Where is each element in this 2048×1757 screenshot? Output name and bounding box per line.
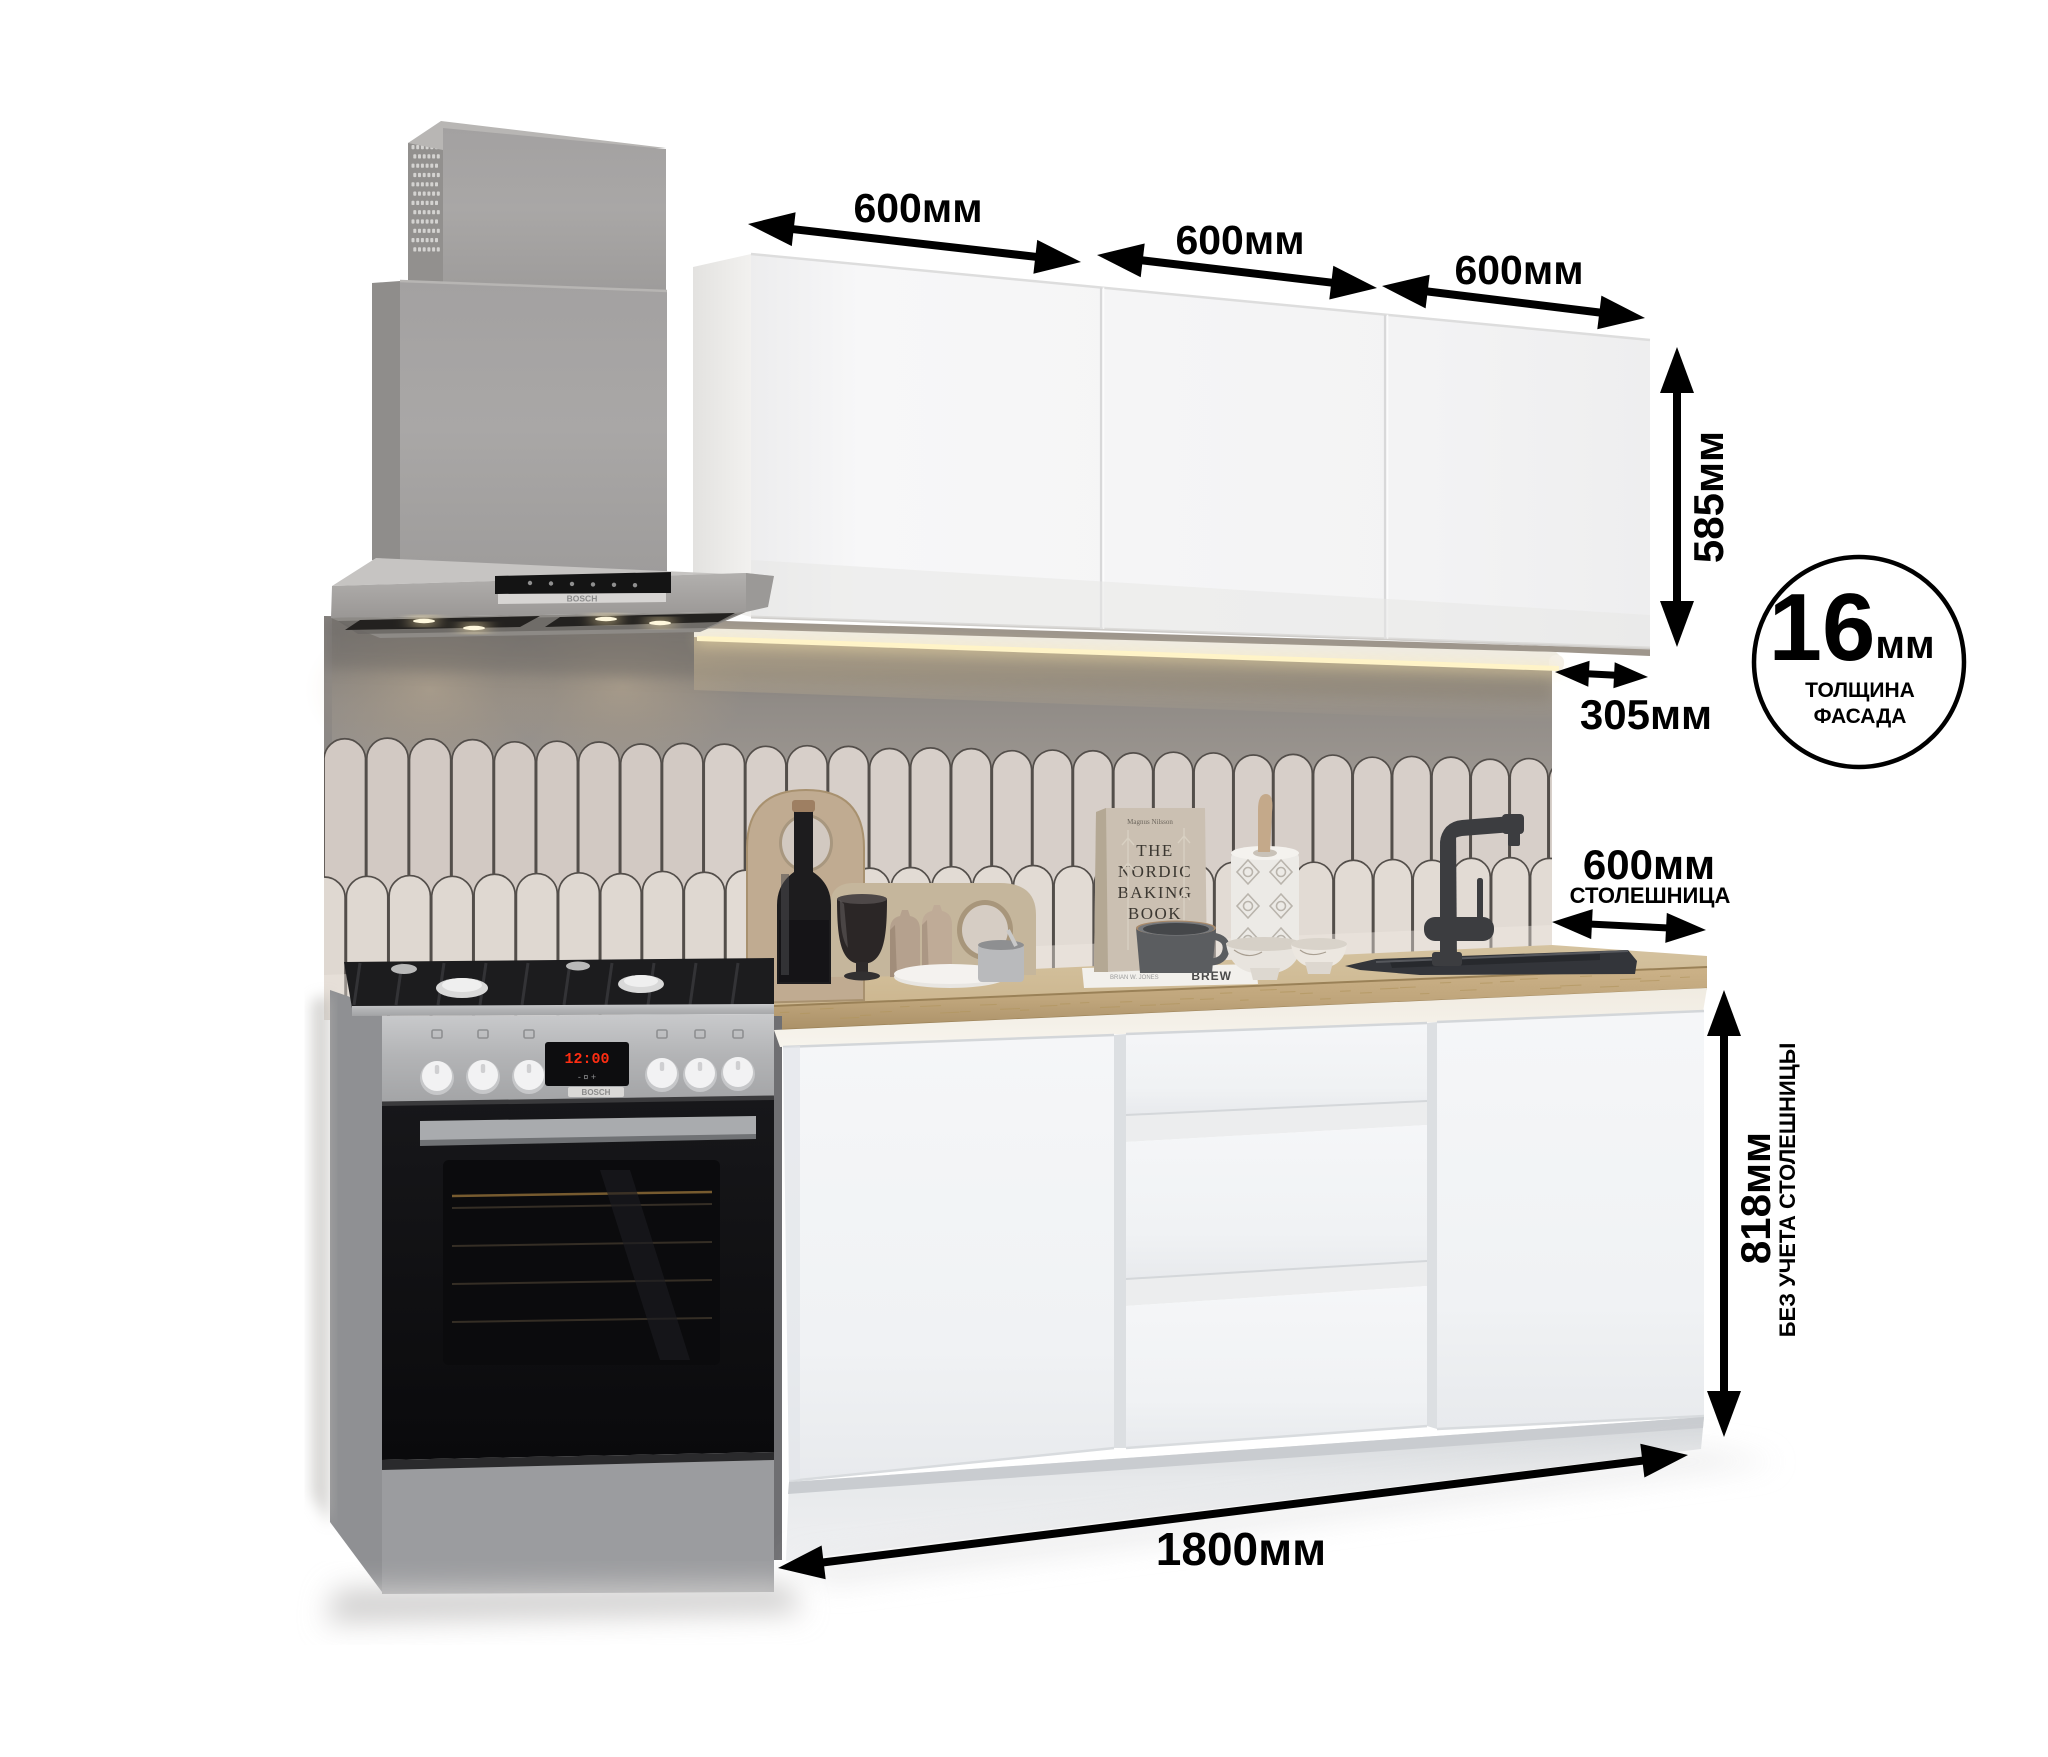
svg-text:ТОЛЩИНА: ТОЛЩИНА [1805, 679, 1915, 702]
svg-text:600мм: 600мм [1454, 247, 1583, 293]
svg-text:BAKING: BAKING [1117, 883, 1192, 902]
svg-text:БЕЗ УЧЕТА СТОЛЕШНИЦЫ: БЕЗ УЧЕТА СТОЛЕШНИЦЫ [1775, 1043, 1800, 1338]
svg-text:BOOK: BOOK [1128, 904, 1182, 923]
svg-text:СТОЛЕШНИЦА: СТОЛЕШНИЦА [1570, 883, 1731, 908]
svg-text:305мм: 305мм [1580, 691, 1712, 738]
svg-text:BOSCH: BOSCH [567, 594, 598, 604]
svg-text:12:00: 12:00 [564, 1051, 609, 1068]
svg-text:818мм: 818мм [1732, 1132, 1779, 1264]
svg-text:585мм: 585мм [1685, 431, 1732, 563]
svg-text:- ¤ +: - ¤ + [578, 1072, 596, 1082]
svg-text:BOSCH: BOSCH [582, 1088, 611, 1097]
svg-text:BRIAN W. JONES: BRIAN W. JONES [1110, 975, 1159, 981]
svg-text:1800мм: 1800мм [1156, 1523, 1326, 1575]
svg-text:600мм: 600мм [1583, 841, 1715, 888]
svg-text:мм: мм [1875, 623, 1934, 667]
svg-text:600мм: 600мм [853, 185, 982, 231]
svg-text:600мм: 600мм [1175, 217, 1304, 263]
svg-text:ФАСАДА: ФАСАДА [1814, 705, 1907, 728]
svg-text:THE: THE [1136, 841, 1174, 860]
svg-text:16: 16 [1769, 574, 1876, 681]
svg-text:Magnus Nilsson: Magnus Nilsson [1127, 818, 1173, 826]
